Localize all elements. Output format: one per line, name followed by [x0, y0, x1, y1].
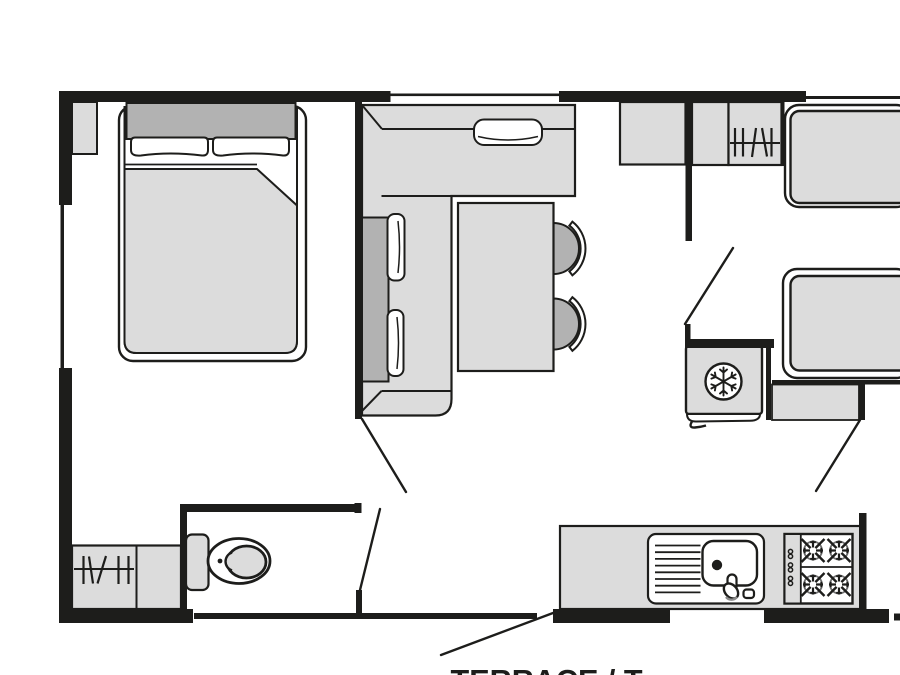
svg-text:TERRACE / T: TERRACE / T	[451, 664, 643, 675]
